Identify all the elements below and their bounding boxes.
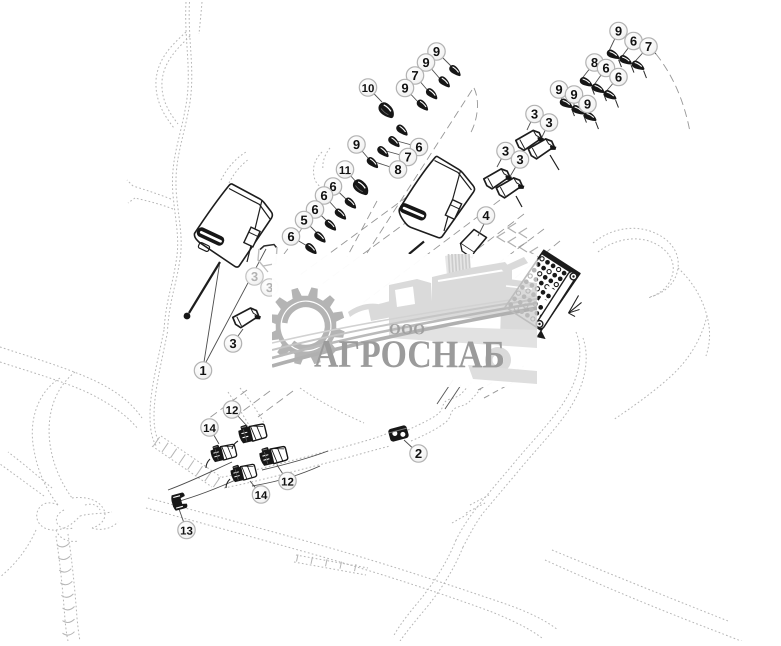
svg-text:14: 14 — [203, 423, 216, 435]
svg-text:8: 8 — [394, 162, 401, 177]
svg-text:12: 12 — [281, 477, 294, 489]
svg-text:2: 2 — [415, 446, 422, 461]
svg-text:9: 9 — [584, 97, 591, 112]
svg-text:9: 9 — [570, 87, 577, 102]
svg-text:6: 6 — [415, 140, 422, 155]
svg-text:5: 5 — [300, 213, 307, 228]
svg-text:6: 6 — [311, 202, 318, 217]
svg-text:7: 7 — [411, 68, 418, 83]
svg-text:14: 14 — [255, 490, 268, 502]
svg-text:3: 3 — [516, 152, 523, 167]
svg-text:9: 9 — [422, 55, 429, 70]
svg-text:4: 4 — [482, 208, 490, 223]
svg-text:3: 3 — [545, 115, 552, 130]
svg-text:9: 9 — [353, 137, 360, 152]
svg-text:6: 6 — [615, 70, 622, 85]
svg-text:3: 3 — [502, 144, 509, 159]
svg-text:7: 7 — [404, 150, 411, 165]
svg-text:АГРОСНАБ: АГРОСНАБ — [314, 333, 505, 377]
svg-text:6: 6 — [602, 61, 609, 76]
svg-text:9: 9 — [555, 82, 562, 97]
svg-text:9: 9 — [615, 24, 622, 39]
svg-text:6: 6 — [320, 188, 327, 203]
svg-text:6: 6 — [630, 34, 637, 49]
svg-text:11: 11 — [339, 165, 352, 177]
svg-text:9: 9 — [433, 44, 440, 59]
svg-text:6: 6 — [287, 229, 294, 244]
svg-text:7: 7 — [645, 39, 652, 54]
svg-text:3: 3 — [531, 107, 538, 122]
svg-text:9: 9 — [401, 81, 408, 96]
svg-text:13: 13 — [180, 526, 193, 538]
svg-text:10: 10 — [362, 83, 375, 95]
svg-text:1: 1 — [199, 363, 206, 378]
svg-text:3: 3 — [251, 269, 258, 284]
svg-text:3: 3 — [229, 336, 236, 351]
svg-text:12: 12 — [226, 405, 239, 417]
